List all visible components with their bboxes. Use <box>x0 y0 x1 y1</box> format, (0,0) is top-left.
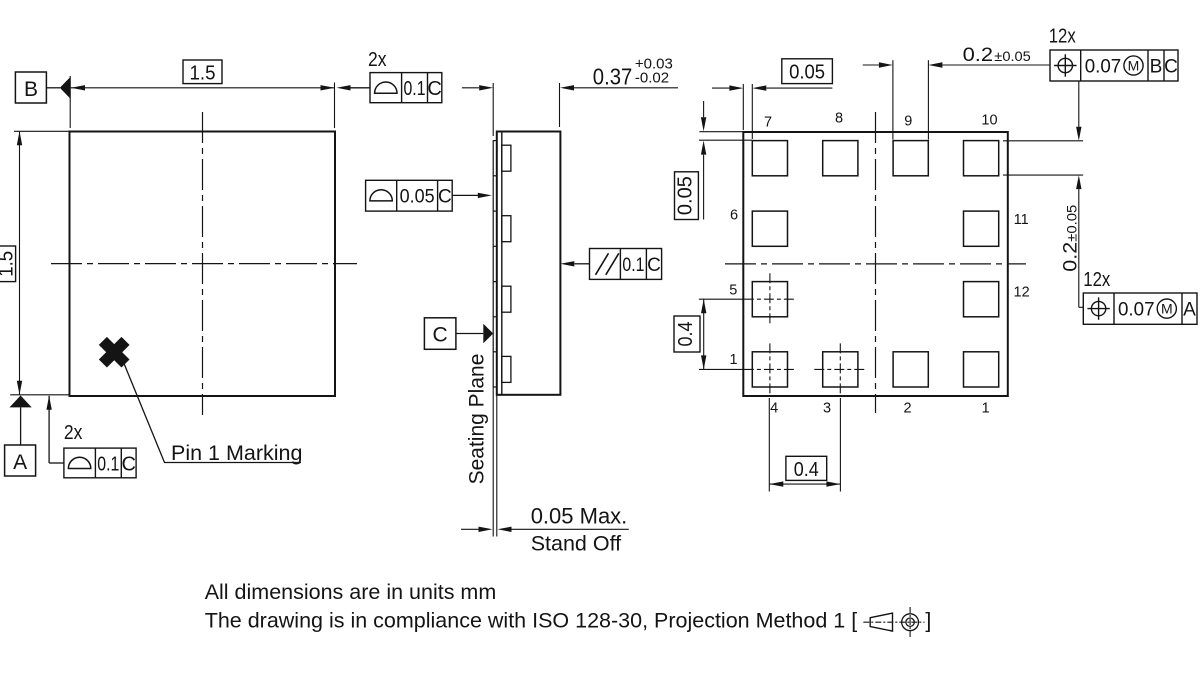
svg-text:All dimensions are in units mm: All dimensions are in units mm <box>205 580 497 604</box>
svg-text:C: C <box>438 187 452 208</box>
svg-text:C: C <box>427 78 441 100</box>
svg-text:0.2: 0.2 <box>963 44 994 66</box>
svg-text:4: 4 <box>770 401 778 417</box>
svg-text:0.4: 0.4 <box>794 459 819 481</box>
svg-text:0.05: 0.05 <box>789 61 825 83</box>
svg-text:0.1: 0.1 <box>97 454 119 476</box>
svg-text:5: 5 <box>729 283 737 299</box>
svg-text:9: 9 <box>904 114 912 130</box>
svg-text:C: C <box>433 324 448 347</box>
svg-text:1: 1 <box>982 401 990 417</box>
svg-text:The drawing is in compliance w: The drawing is in compliance with ISO 12… <box>205 609 858 633</box>
svg-text:0.1: 0.1 <box>622 255 644 276</box>
svg-text:0.05: 0.05 <box>675 176 697 215</box>
svg-text:1.5: 1.5 <box>0 251 18 277</box>
svg-text:10: 10 <box>981 113 997 129</box>
svg-text:12x: 12x <box>1049 26 1076 48</box>
svg-text:0.1: 0.1 <box>404 78 426 100</box>
svg-text:3: 3 <box>823 401 831 417</box>
svg-text:6: 6 <box>730 208 738 224</box>
svg-text:1: 1 <box>729 352 737 368</box>
svg-text:-0.02: -0.02 <box>635 69 669 86</box>
svg-text:C: C <box>647 255 661 276</box>
svg-text:Pin 1 Marking: Pin 1 Marking <box>171 441 302 465</box>
svg-text:±0.05: ±0.05 <box>994 49 1031 64</box>
svg-text:M: M <box>1161 301 1173 317</box>
svg-text:A: A <box>13 451 27 474</box>
svg-text:2x: 2x <box>64 422 83 444</box>
svg-text:Seating Plane: Seating Plane <box>466 354 489 485</box>
svg-text:0.07: 0.07 <box>1118 300 1155 321</box>
svg-text:0.37: 0.37 <box>593 64 633 90</box>
svg-text:B: B <box>24 78 38 101</box>
svg-text:C: C <box>121 454 135 476</box>
svg-text:M: M <box>1128 57 1140 73</box>
svg-text:12: 12 <box>1014 285 1030 301</box>
svg-text:8: 8 <box>835 111 843 127</box>
svg-text:0.05: 0.05 <box>400 187 435 208</box>
svg-text:]: ] <box>925 609 931 633</box>
svg-text:1.5: 1.5 <box>190 63 216 85</box>
svg-text:A: A <box>1183 300 1196 321</box>
svg-text:B: B <box>1150 57 1163 78</box>
svg-text:C: C <box>1164 57 1178 78</box>
svg-text:12x: 12x <box>1083 269 1110 291</box>
svg-text:0.07: 0.07 <box>1085 57 1122 78</box>
svg-text:2: 2 <box>903 401 911 417</box>
svg-text:0.4: 0.4 <box>675 322 697 347</box>
svg-text:11: 11 <box>1014 212 1029 228</box>
svg-text:Stand Off: Stand Off <box>531 532 621 556</box>
svg-text:0.05 Max.: 0.05 Max. <box>531 503 628 528</box>
svg-text:7: 7 <box>764 115 772 131</box>
svg-text:2x: 2x <box>368 49 387 71</box>
